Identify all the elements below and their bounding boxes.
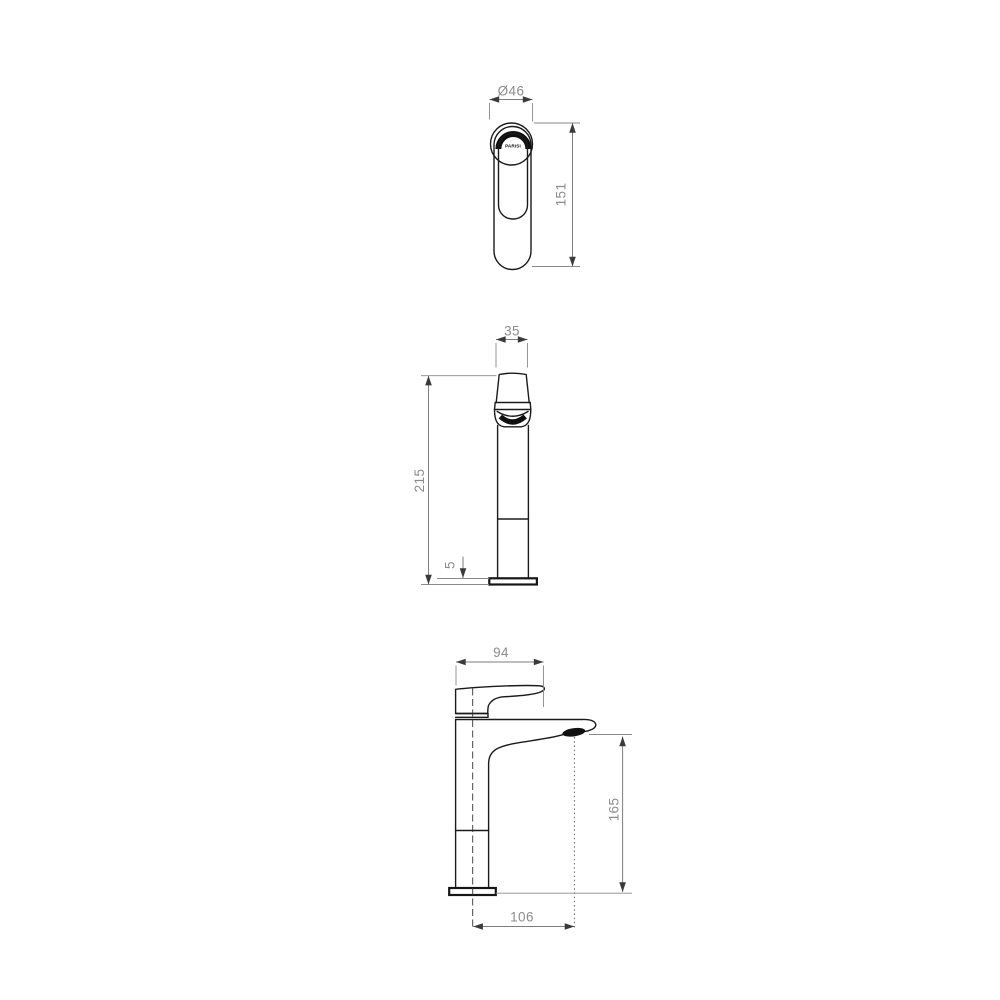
front-view-body-sides xyxy=(498,426,529,579)
dim-label-outlet-reach: 106 xyxy=(510,910,534,925)
drawing-page: PARISI Ø46 151 35 215 xyxy=(0,0,1000,1000)
front-view-spout-dark-arc xyxy=(500,417,525,423)
dim-label-handle-length: 151 xyxy=(554,183,569,207)
side-view: 94 165 106 xyxy=(449,645,632,930)
front-view-base-plate xyxy=(489,578,537,584)
top-view: PARISI Ø46 151 xyxy=(490,84,581,270)
side-view-spout-underside xyxy=(489,735,563,888)
dim-label-body-width: 35 xyxy=(504,324,520,339)
dim-label-handle-reach: 94 xyxy=(493,645,509,660)
side-view-aerator xyxy=(562,727,586,738)
dim-label-base-thickness: 5 xyxy=(443,561,458,569)
front-view-handle xyxy=(496,373,529,402)
brand-logo-text: PARISI xyxy=(505,144,521,149)
side-view-handle xyxy=(456,686,545,714)
dim-label-overall-height: 215 xyxy=(412,469,427,493)
front-view-collar-sides xyxy=(495,403,531,410)
dim-label-outlet-height: 165 xyxy=(607,798,622,822)
front-view: 35 215 5 xyxy=(412,324,537,585)
technical-drawing-canvas: PARISI Ø46 151 35 215 xyxy=(0,0,1000,1000)
dim-label-diameter: Ø46 xyxy=(498,84,525,99)
